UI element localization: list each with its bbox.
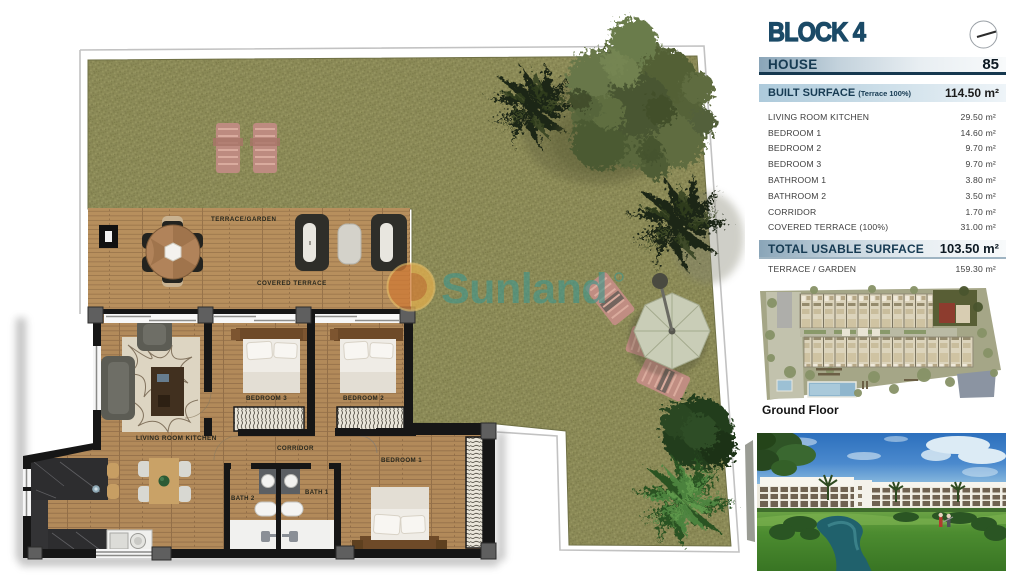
svg-text:BEDROOM 1: BEDROOM 1 bbox=[381, 457, 422, 464]
svg-text:BATH 2: BATH 2 bbox=[231, 496, 255, 502]
svg-text:TERRACE/GARDEN: TERRACE/GARDEN bbox=[211, 216, 276, 223]
svg-text:CORRIDOR: CORRIDOR bbox=[277, 445, 314, 452]
svg-text:COVERED TERRACE: COVERED TERRACE bbox=[257, 280, 327, 287]
svg-text:BEDROOM 3: BEDROOM 3 bbox=[246, 395, 287, 402]
svg-text:BATH 1: BATH 1 bbox=[305, 490, 329, 496]
svg-text:BEDROOM 2: BEDROOM 2 bbox=[343, 395, 384, 402]
svg-text:LIVING ROOM KITCHEN: LIVING ROOM KITCHEN bbox=[136, 435, 217, 442]
svg-text:Sunland: Sunland bbox=[441, 265, 607, 313]
